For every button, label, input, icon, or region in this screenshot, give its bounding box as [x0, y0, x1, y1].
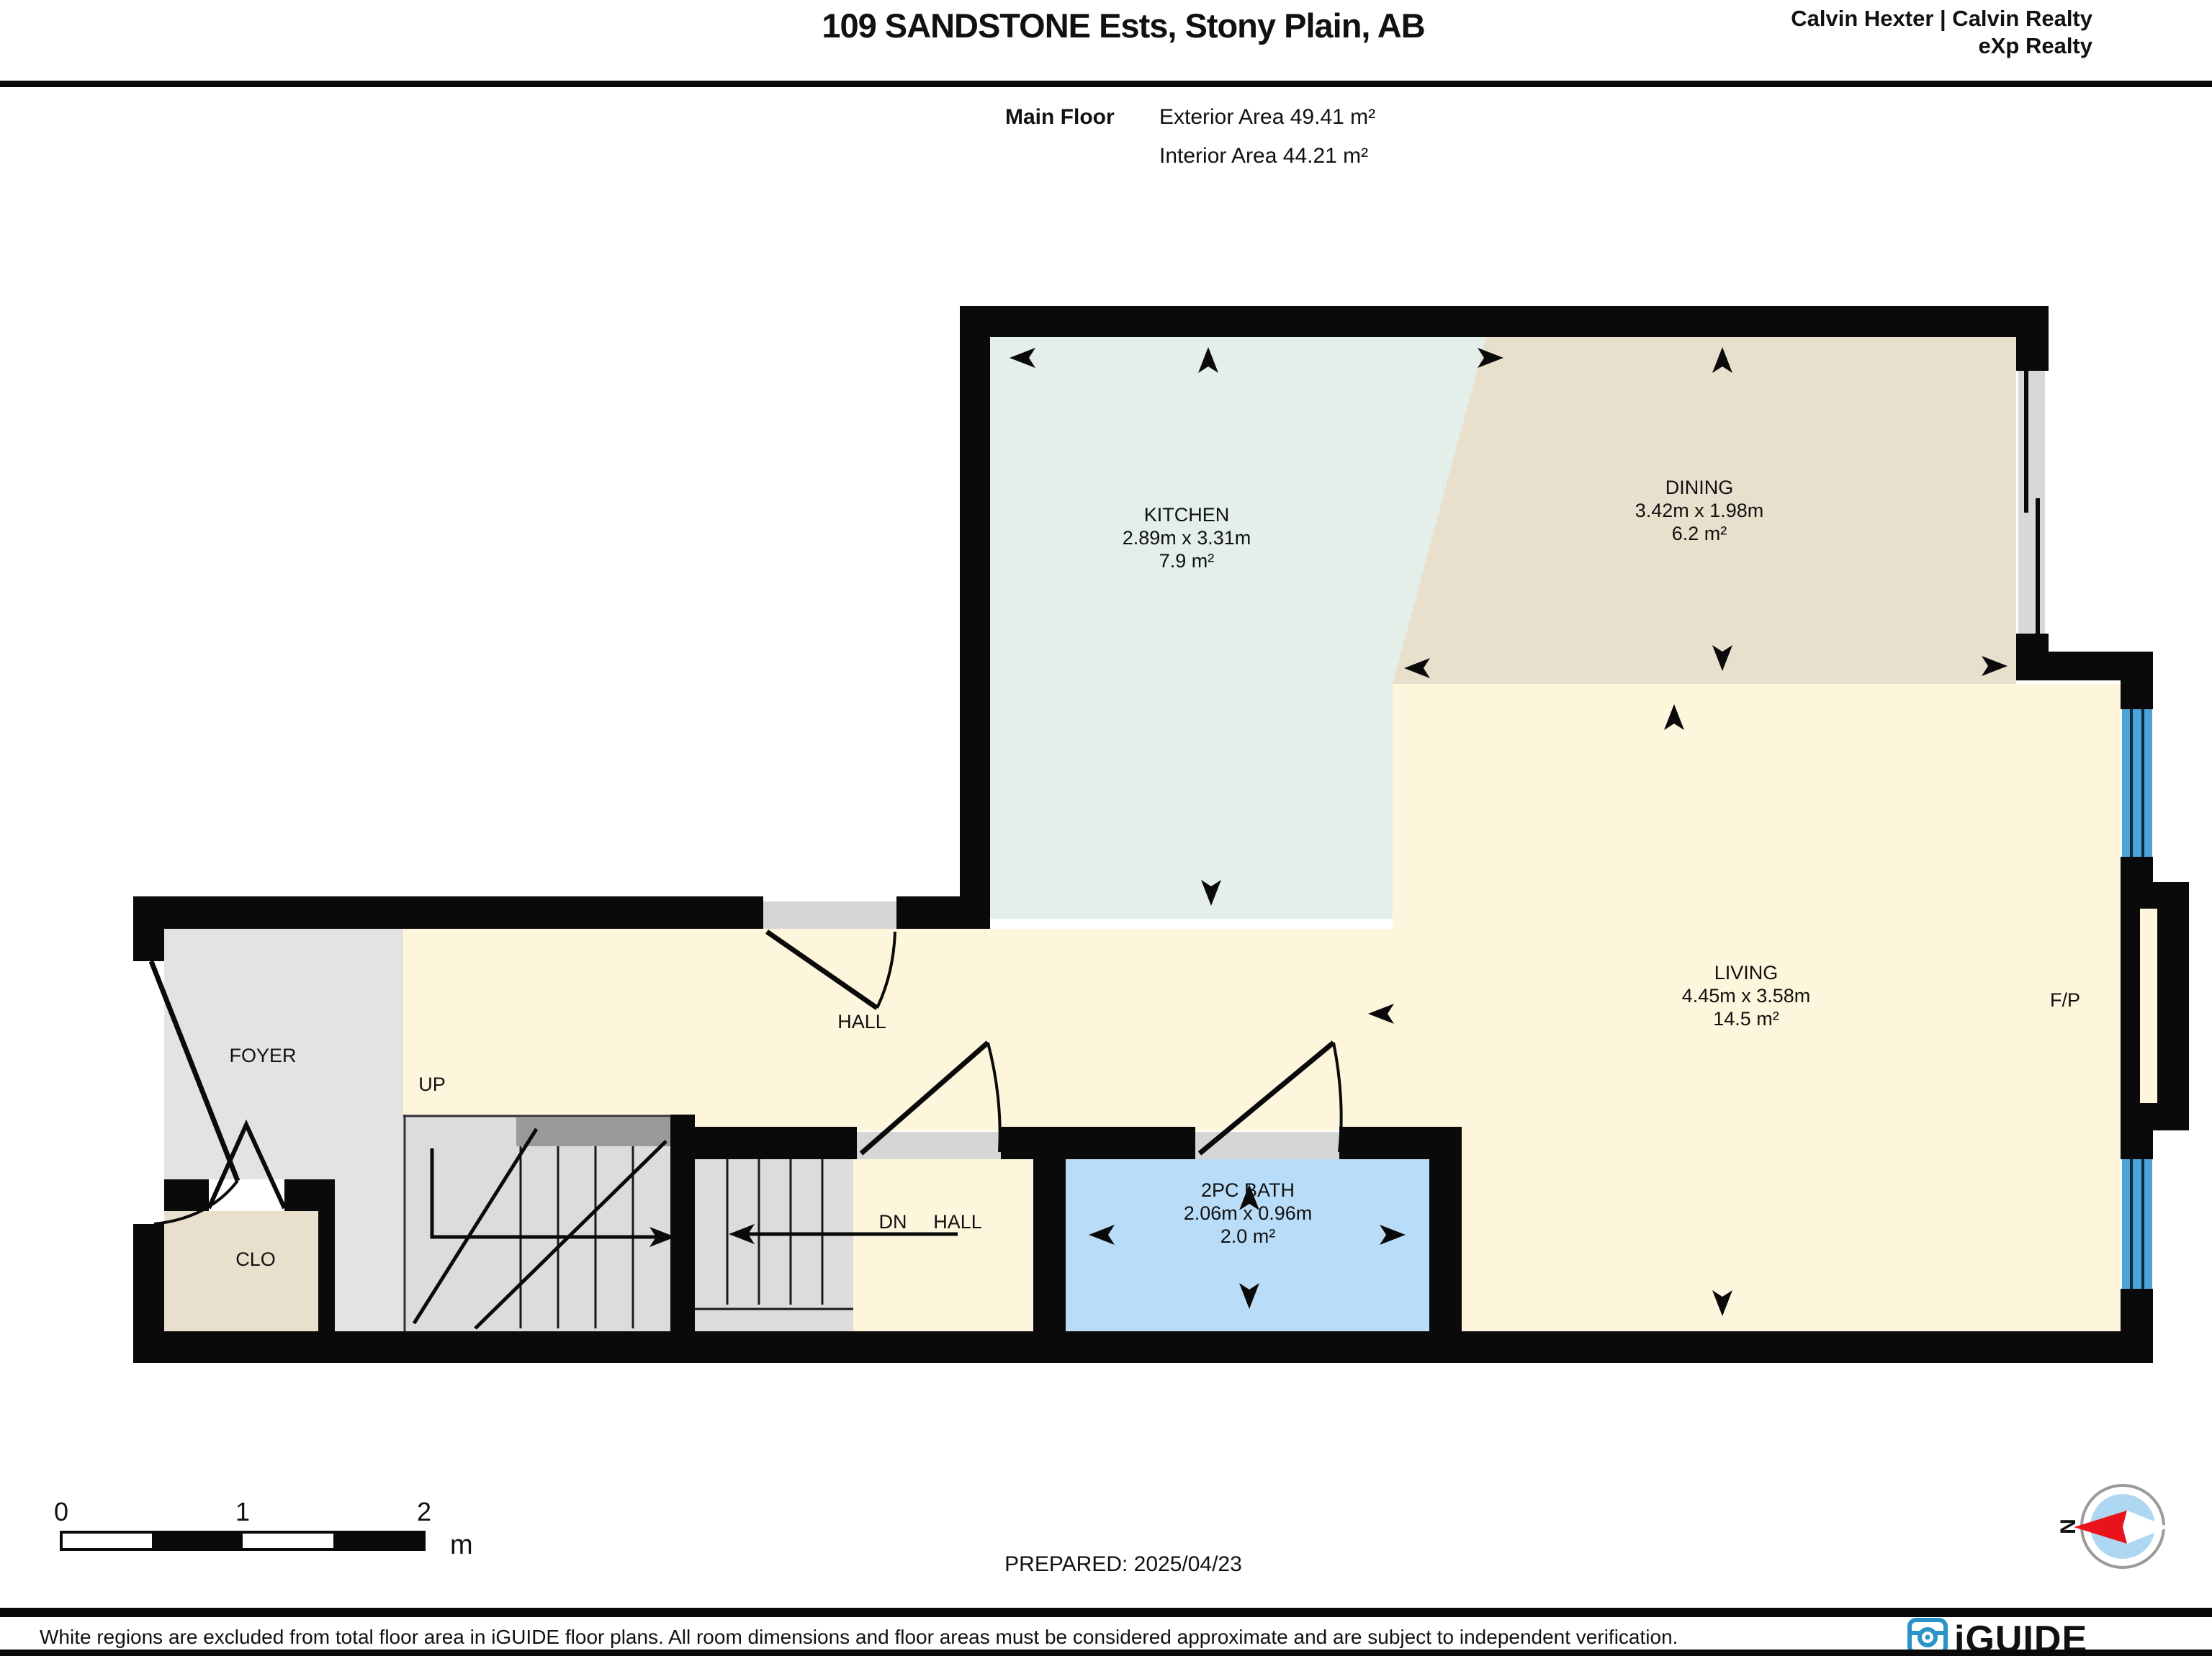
wall-hall-row-1 [695, 1127, 857, 1159]
dining-area: 6.2 m² [1672, 523, 1727, 544]
header: 109 SANDSTONE Ests, Stony Plain, AB Calv… [0, 6, 2212, 168]
living-area: 14.5 m² [1713, 1008, 1779, 1030]
floor-areas [164, 337, 2121, 1331]
header-divider [0, 81, 2212, 87]
fireplace-label: F/P [2050, 989, 2080, 1011]
wall-bath-left [1033, 1127, 1066, 1331]
living-label: LIVING [1714, 962, 1779, 984]
interior-area-label: Interior Area 44.21 m² [1159, 144, 1368, 168]
bath-dims: 2.06m x 0.96m [1184, 1202, 1313, 1224]
foyer-label: FOYER [229, 1045, 296, 1066]
prepared-date-label: PREPARED: 2025/04/23 [1004, 1552, 1242, 1576]
entry-hall-threshold [763, 901, 896, 929]
kitchen-label: KITCHEN [1144, 504, 1230, 526]
foyer-strip [335, 1179, 403, 1331]
kitchen-dims: 2.89m x 3.31m [1123, 527, 1251, 549]
footer-disclaimer: White regions are excluded from total fl… [40, 1626, 1678, 1648]
dining-label: DINING [1665, 477, 1734, 498]
scale-bar-segment [333, 1532, 424, 1549]
wall-living-right-1 [2121, 680, 2153, 709]
exterior-area-label: Exterior Area 49.41 m² [1159, 105, 1375, 129]
footer-divider [0, 1608, 2212, 1617]
wall-main-top-right [896, 896, 960, 929]
agent-name: Calvin Hexter | Calvin Realty [1791, 6, 2092, 31]
dining-sliding-door [2018, 371, 2045, 634]
wall-step [2016, 652, 2153, 680]
kitchen-area: 7.9 m² [1159, 550, 1215, 572]
wall-bottom [133, 1331, 2153, 1363]
compass-icon: N [2056, 1485, 2169, 1567]
scale-bar-segment [152, 1532, 243, 1549]
wall-kitchen-left [960, 306, 990, 929]
dn-hall-label: HALL [933, 1211, 982, 1233]
hall-floor [403, 929, 1393, 1130]
closet-floor [164, 1211, 318, 1331]
stairs-up-rail [516, 1117, 670, 1146]
wall-closet-right [318, 1211, 335, 1331]
scale-tick-2: 2 [417, 1497, 431, 1526]
scale-bar: 0 1 2 m [54, 1497, 473, 1560]
brokerage-name: eXp Realty [1978, 33, 2092, 58]
wall-closet-stub-left [164, 1179, 209, 1211]
up-label: UP [418, 1074, 446, 1095]
fireplace [2121, 882, 2189, 1130]
hall-label: HALL [837, 1011, 886, 1032]
dn-label: DN [879, 1211, 907, 1233]
dn-hall-floor [853, 1156, 1033, 1331]
iguide-camera-dot [1925, 1635, 1930, 1640]
stairs-up-floor [403, 1115, 670, 1331]
dining-dims: 3.42m x 1.98m [1635, 500, 1764, 521]
stairs-dn-floor [695, 1159, 853, 1331]
scale-unit-label: m [450, 1530, 473, 1560]
wall-left-upper [133, 896, 164, 961]
page-title: 109 SANDSTONE Ests, Stony Plain, AB [822, 6, 1424, 45]
wall-main-top-left [133, 896, 763, 929]
living-dims: 4.45m x 3.58m [1682, 985, 1811, 1007]
compass-north-label: N [2056, 1518, 2080, 1534]
wall-hall-row-2 [1001, 1127, 1195, 1159]
page-bottom-bar [0, 1650, 2212, 1656]
scale-tick-1: 1 [235, 1497, 250, 1526]
closet-label: CLO [235, 1248, 276, 1270]
wall-bath-right [1429, 1127, 1462, 1331]
wall-stairs-divider [670, 1115, 695, 1331]
bath-label: 2PC BATH [1201, 1179, 1295, 1201]
footer: White regions are excluded from total fl… [0, 1608, 2212, 1656]
wall-upper-top [960, 306, 2049, 337]
wall-dining-right-top [2016, 306, 2049, 371]
fireplace-slot [2140, 909, 2157, 1103]
bath-area: 2.0 m² [1220, 1225, 1276, 1247]
living-window-upper [2122, 709, 2152, 857]
floorplan-page: 109 SANDSTONE Ests, Stony Plain, AB Calv… [0, 0, 2212, 1656]
floor-label: Main Floor [1005, 105, 1115, 129]
living-window-lower [2122, 1159, 2152, 1289]
scale-tick-0: 0 [54, 1497, 68, 1526]
wall-closet-stub-right [284, 1179, 335, 1211]
